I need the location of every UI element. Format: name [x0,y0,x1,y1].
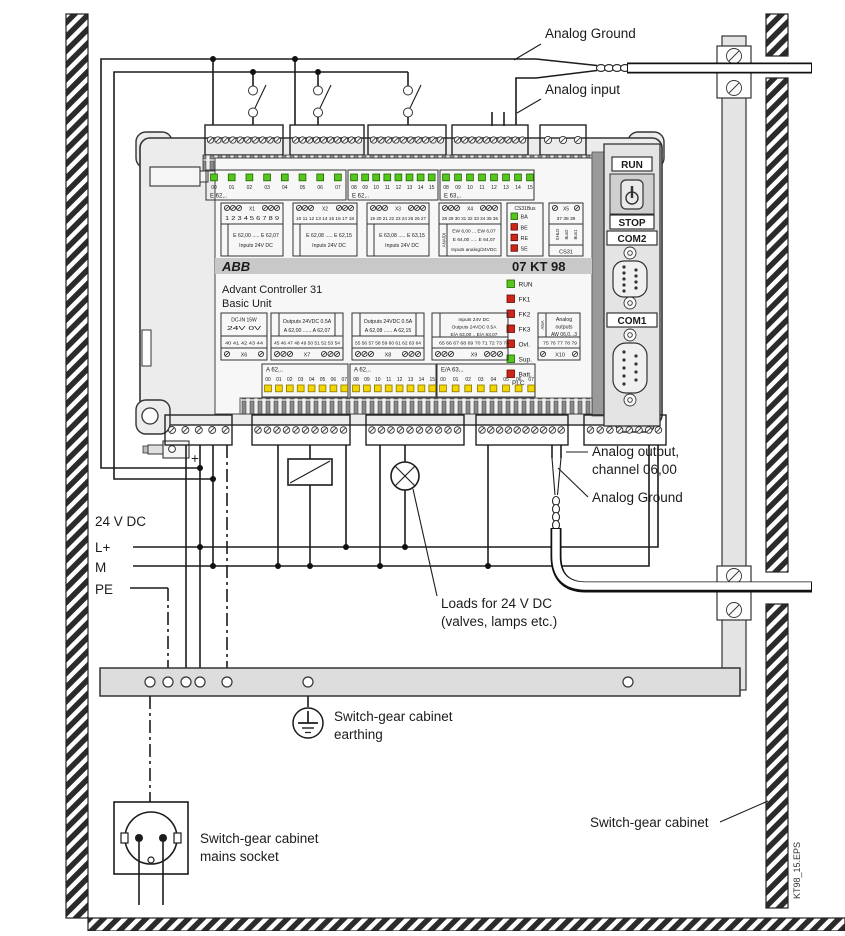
svg-text:05: 05 [503,377,509,383]
svg-text:01: 01 [276,377,282,383]
svg-text:1 2 3 4 5 6 7 8 9: 1 2 3 4 5 6 7 8 9 [225,216,279,222]
svg-text:outputs: outputs [555,325,572,331]
svg-text:37 38 39: 37 38 39 [557,216,576,222]
svg-text:Outputs 24VDC 0.5A: Outputs 24VDC 0.5A [364,319,413,325]
svg-text:15: 15 [429,185,435,191]
svg-text:11: 11 [479,185,484,191]
wiring-diagram: Analog Ground Analog input [0,0,845,931]
right-wall-bottom [766,604,788,908]
analog-ground-top-label: Analog Ground [545,26,636,41]
svg-text:03: 03 [478,377,484,383]
loads-label-1: Loads for 24 V DC [441,596,552,611]
svg-text:A 62,..: A 62,.. [354,368,371,374]
analog-input-wire [516,78,536,125]
socket-label-1: Switch-gear cabinet [200,831,319,846]
svg-text:05: 05 [300,185,306,191]
relay-load [278,445,332,566]
svg-text:04: 04 [309,377,315,383]
svg-text:Bus1: Bus1 [573,229,578,240]
svg-text:07: 07 [528,377,534,383]
svg-text:X6: X6 [241,353,248,359]
model-label: 07 KT 98 [512,259,565,274]
svg-text:X4: X4 [467,207,473,213]
svg-text:12: 12 [491,185,497,191]
svg-text:RUN: RUN [519,282,533,289]
supply-label: 24 V DC [95,514,146,529]
svg-text:A 62,00 ...... A 62,07: A 62,00 ...... A 62,07 [284,328,331,334]
svg-text:00: 00 [265,377,271,383]
svg-text:CS31Bus: CS31Bus [514,206,536,212]
svg-text:14: 14 [515,185,521,191]
brand-bar: ABB 07 KT 98 [215,258,592,274]
terminal-screws [255,427,347,434]
svg-text:10 11 12 13 14 15 16 17 18: 10 11 12 13 14 15 16 17 18 [296,216,355,221]
svg-text:10: 10 [467,185,473,191]
earth-tab [143,441,189,458]
svg-text:07: 07 [335,185,341,191]
file-tag: KT98_15.EPS [792,842,802,899]
svg-text:08: 08 [351,185,357,191]
terminal-screws [369,427,461,434]
svg-text:FK2: FK2 [519,312,531,319]
svg-text:BE: BE [521,225,529,231]
svg-text:11: 11 [386,377,391,383]
svg-text:40 41 42 43 44: 40 41 42 43 44 [225,341,264,346]
terminal-screws [479,427,565,434]
svg-text:Inputs 24V DC: Inputs 24V DC [458,317,490,323]
com2-label: COM2 [618,234,647,245]
svg-text:SE: SE [521,247,529,253]
analog-input-label: Analog input [545,82,620,97]
lplus-rail [133,445,658,547]
svg-text:09: 09 [455,185,461,191]
svg-text:05: 05 [320,377,326,383]
m-label: M [95,560,106,575]
svg-text:07: 07 [342,377,348,383]
terminal-screws [169,427,230,434]
svg-text:X7: X7 [304,353,311,359]
svg-text:01: 01 [229,185,235,191]
svg-text:E 62,08 ..... E 62,15: E 62,08 ..... E 62,15 [306,233,352,239]
analog-ground-bottom-label: Analog Ground [592,490,683,505]
svg-text:Bus2: Bus2 [564,229,569,240]
svg-text:Sup.: Sup. [519,357,533,364]
svg-text:00: 00 [440,377,446,383]
svg-text:15: 15 [527,185,533,191]
bottom-wall [88,918,845,931]
battery-compartment [150,167,200,186]
svg-text:02: 02 [287,377,293,383]
earthing-label-2: earthing [334,727,383,742]
svg-text:01: 01 [453,377,459,383]
svg-text:03: 03 [298,377,304,383]
svg-text:EW 6,00 ... EW 6,07: EW 6,00 ... EW 6,07 [452,229,496,235]
cabinet-label: Switch-gear cabinet [590,815,709,830]
stop-label: STOP [618,218,645,229]
svg-text:14: 14 [419,377,425,383]
svg-text:X5: X5 [563,207,569,213]
twisted-pair-icon [597,65,630,72]
svg-text:55 56 57 58 59 60 61 62 63 64: 55 56 57 58 59 60 61 62 63 64 [355,341,422,346]
svg-text:E/A 63,..: E/A 63,.. [441,368,464,374]
svg-text:X8: X8 [385,353,392,359]
svg-text:SHLD: SHLD [555,229,560,241]
com-module: RUN STOP COM2 COM1 [604,144,660,426]
earthing-bar [100,668,740,696]
svg-text:Outputs 24VDC 0.5A: Outputs 24VDC 0.5A [283,319,332,325]
svg-text:ANA/DI: ANA/DI [442,233,447,248]
product-subtitle: Basic Unit [222,298,272,310]
svg-text:08: 08 [443,185,449,191]
svg-text:Ovl.: Ovl. [519,342,531,349]
svg-text:15: 15 [430,377,436,383]
analog-output-label-2: channel 06,00 [592,462,677,477]
analog-output-label-1: Analog output, [592,444,679,459]
input-switch-3 [404,72,422,125]
svg-text:65 66 67 68 69 70 71 72 73 74: 65 66 67 68 69 70 71 72 73 74 [439,341,510,346]
svg-text:06: 06 [317,185,323,191]
bottom-connector-comb [240,398,592,414]
socket-label-2: mains socket [200,849,279,864]
svg-text:03: 03 [264,185,270,191]
svg-text:FK3: FK3 [519,327,531,334]
svg-text:04: 04 [282,185,288,191]
svg-text:02: 02 [465,377,471,383]
svg-text:X9: X9 [471,353,478,359]
abb-logo: ABB [221,259,250,274]
left-wall [66,14,88,918]
svg-text:00: 00 [211,185,217,191]
loads-label-2: (valves, lamps etc.) [441,614,557,629]
lplus-label: L+ [95,540,111,555]
mains-socket: Switch-gear cabinet mains socket [114,696,319,905]
svg-text:X3: X3 [395,207,401,213]
svg-text:06: 06 [516,377,522,383]
product-name: Advant Controller 31 [222,284,322,296]
socket-icon [125,812,177,864]
right-wall-top [766,14,788,56]
pe-label: PE [95,582,113,597]
svg-text:13: 13 [503,185,509,191]
cable-clamp-bottom [717,566,751,620]
run-label: RUN [621,160,643,171]
svg-text:X10: X10 [555,353,565,359]
right-wall-middle [766,78,788,572]
svg-text:X1: X1 [249,207,255,213]
svg-text:DC-IN 15W: DC-IN 15W [231,318,257,324]
svg-text:04: 04 [491,377,497,383]
svg-text:09: 09 [364,377,370,383]
svg-text:02: 02 [247,185,253,191]
svg-text:E 63,08 ..... E 63,15: E 63,08 ..... E 63,15 [379,233,425,239]
earthing-label-1: Switch-gear cabinet [334,709,453,724]
svg-text:RE: RE [521,236,529,242]
diagram-page: Analog Ground Analog input [0,0,845,931]
svg-text:E 63,..: E 63,.. [444,194,462,200]
svg-text:Inputs 24V DC: Inputs 24V DC [239,243,273,249]
m-rail [133,445,649,566]
svg-text:24V 0V: 24V 0V [227,326,262,332]
svg-text:A 62,08 ...... A 62,15: A 62,08 ...... A 62,15 [365,328,412,334]
svg-text:E 62,..: E 62,.. [210,194,228,200]
svg-text:FK1: FK1 [519,297,531,304]
svg-text:Inputs analog/24VDC: Inputs analog/24VDC [451,247,497,253]
input-switch-2 [314,72,332,125]
svg-text:X2: X2 [322,207,328,213]
svg-text:10: 10 [375,377,381,383]
svg-text:12: 12 [396,185,402,191]
side-rail-dark [592,152,604,416]
svg-text:A 62,..: A 62,.. [266,368,283,374]
svg-text:Inputs 24V DC: Inputs 24V DC [312,243,346,249]
svg-text:ANA: ANA [540,320,545,329]
svg-text:E 62,00 ..... E 62,07: E 62,00 ..... E 62,07 [233,233,279,239]
com1-label: COM1 [618,316,647,327]
svg-text:10: 10 [373,185,379,191]
svg-text:08: 08 [353,377,359,383]
svg-text:13: 13 [408,377,414,383]
svg-text:E 64,00 ..... E 64,07: E 64,00 ..... E 64,07 [453,237,496,243]
svg-text:12: 12 [397,377,403,383]
svg-text:BA: BA [521,215,529,221]
plus-label: + [191,451,199,466]
svg-text:11: 11 [385,185,390,191]
svg-text:06: 06 [331,377,337,383]
svg-text:19 20 21 22 23 24 25 26 27: 19 20 21 22 23 24 25 26 27 [370,216,427,221]
controller-unit: 0001020304050607 0809101112131415 080910… [136,125,666,458]
svg-text:Analog: Analog [556,317,572,323]
terminal-screws [544,136,581,143]
svg-text:Inputs 24V DC: Inputs 24V DC [385,243,419,249]
svg-text:75 76 77 78 79: 75 76 77 78 79 [543,341,578,346]
svg-text:09: 09 [362,185,368,191]
run-stop-switch[interactable] [610,174,654,214]
side-slot [142,330,151,366]
svg-text:28 29 30 31 32 33 34 35 36: 28 29 30 31 32 33 34 35 36 [442,216,499,221]
svg-text:E 62,..: E 62,.. [352,194,370,200]
svg-text:45 46 47 48 49 50 51 52 53 54: 45 46 47 48 49 50 51 52 53 54 [274,341,341,346]
input-switch-1 [249,72,267,125]
svg-text:CS31: CS31 [559,250,573,256]
svg-text:13: 13 [407,185,413,191]
cabinet-earthing: Switch-gear cabinet earthing [293,696,453,742]
svg-text:14: 14 [418,185,424,191]
svg-text:Outputs 24VDC 0.5A: Outputs 24VDC 0.5A [452,325,498,331]
